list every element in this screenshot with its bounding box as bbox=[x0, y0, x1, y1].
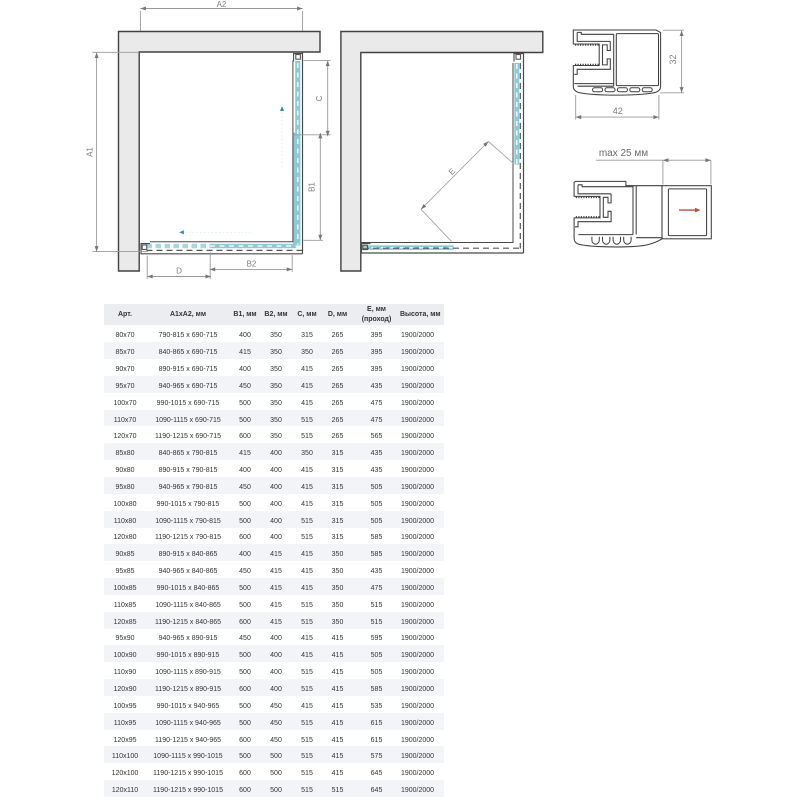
svg-text:C: C bbox=[315, 95, 324, 101]
svg-text:B1: B1 bbox=[308, 182, 317, 192]
svg-text:D: D bbox=[176, 267, 182, 276]
svg-text:A2: A2 bbox=[217, 0, 227, 9]
svg-text:42: 42 bbox=[613, 106, 623, 116]
svg-text:max 25 мм: max 25 мм bbox=[599, 148, 648, 159]
svg-text:B2: B2 bbox=[247, 260, 257, 269]
svg-text:E: E bbox=[447, 167, 457, 177]
svg-text:A1: A1 bbox=[86, 147, 95, 157]
svg-text:32: 32 bbox=[668, 54, 678, 64]
